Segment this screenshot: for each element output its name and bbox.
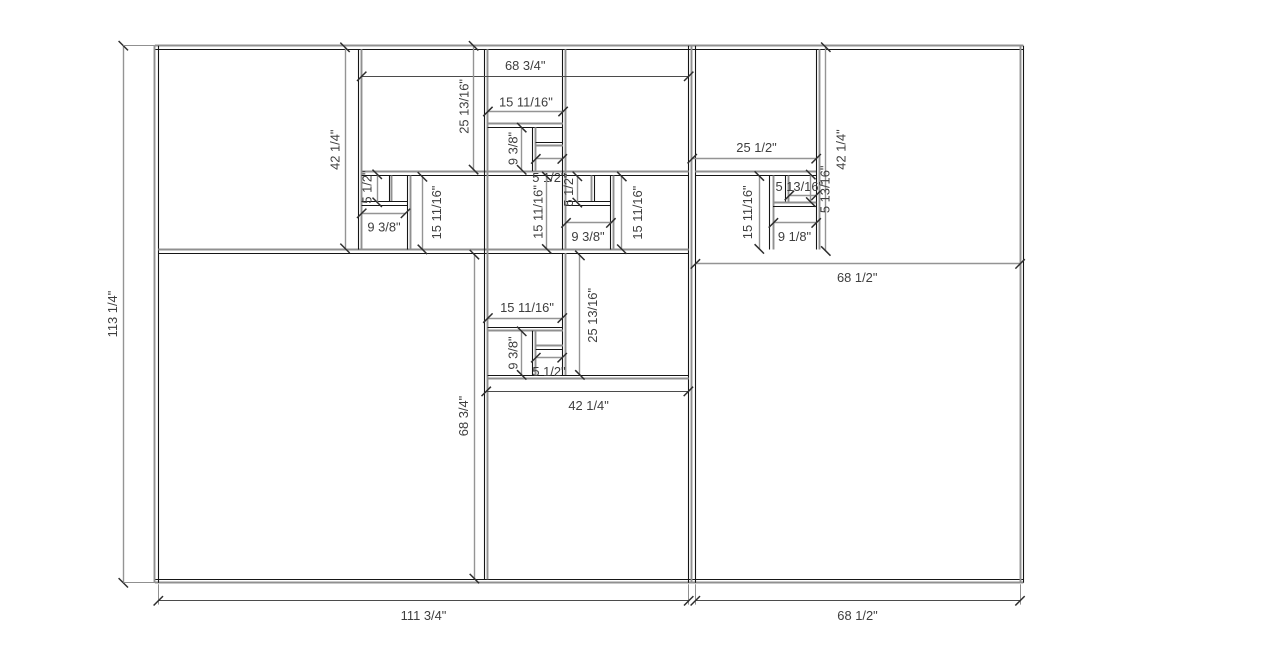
svg-text:25 1/2": 25 1/2"	[736, 140, 777, 155]
svg-text:9 3/8": 9 3/8"	[367, 220, 401, 235]
svg-text:42 1/4": 42 1/4"	[568, 398, 609, 413]
svg-text:15 11/16": 15 11/16"	[500, 300, 554, 315]
svg-text:25 13/16": 25 13/16"	[456, 79, 471, 134]
svg-text:42 1/4": 42 1/4"	[328, 129, 343, 170]
svg-text:68 1/2": 68 1/2"	[837, 608, 878, 623]
svg-text:5 1/2": 5 1/2"	[561, 173, 576, 207]
svg-text:5 13/16": 5 13/16"	[776, 179, 824, 194]
svg-text:15 11/16": 15 11/16"	[630, 185, 645, 239]
svg-text:68 3/4": 68 3/4"	[456, 395, 471, 436]
svg-text:5 1/2": 5 1/2"	[359, 170, 374, 204]
svg-text:113 1/4": 113 1/4"	[105, 290, 120, 337]
svg-text:15 11/16": 15 11/16"	[740, 185, 755, 239]
svg-text:5 13/16": 5 13/16"	[818, 165, 833, 213]
svg-text:15 11/16": 15 11/16"	[429, 185, 444, 239]
svg-text:15 11/16": 15 11/16"	[499, 94, 553, 109]
svg-text:111 3/4": 111 3/4"	[401, 608, 447, 623]
svg-text:9 3/8": 9 3/8"	[571, 229, 605, 244]
svg-text:9 3/8": 9 3/8"	[506, 336, 521, 370]
svg-text:5 1/2": 5 1/2"	[532, 364, 566, 379]
svg-text:25 13/16": 25 13/16"	[585, 288, 600, 343]
svg-text:68 3/4": 68 3/4"	[505, 58, 546, 73]
svg-text:15 11/16": 15 11/16"	[531, 185, 546, 239]
svg-text:68 1/2": 68 1/2"	[837, 270, 878, 285]
svg-text:42 1/4": 42 1/4"	[834, 129, 849, 170]
svg-text:9 3/8": 9 3/8"	[506, 131, 521, 165]
svg-text:9 1/8": 9 1/8"	[778, 229, 812, 244]
